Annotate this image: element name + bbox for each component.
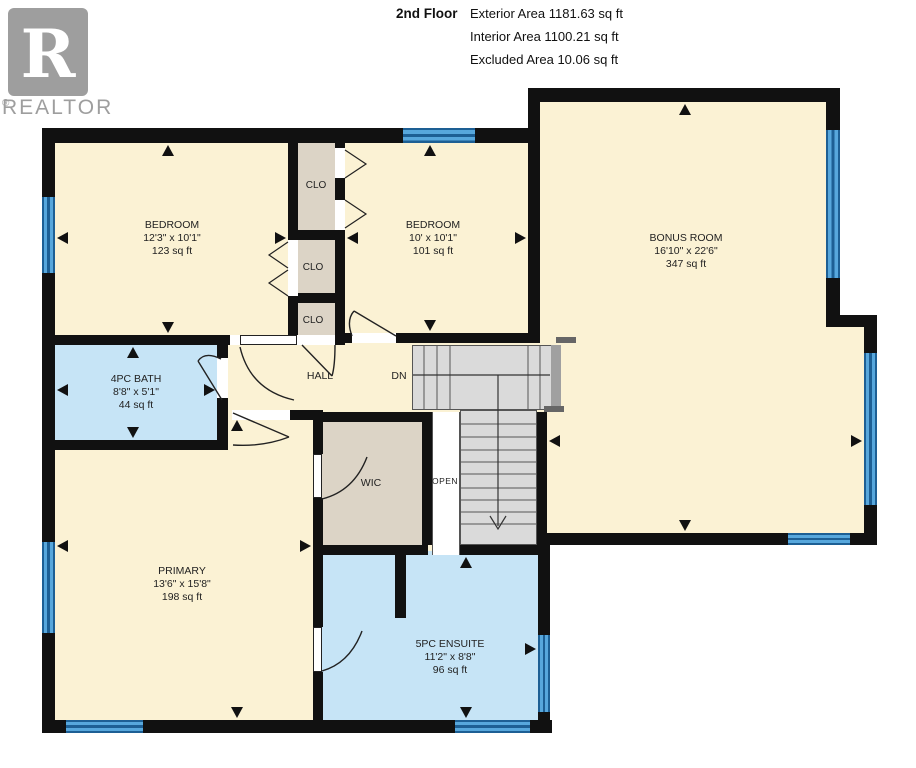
room-label-ensuite: 5PC ENSUITE 11'2" x 8'8" 96 sq ft: [370, 638, 530, 677]
dimension-arrow: [460, 557, 472, 568]
door-opening: [352, 333, 396, 343]
wall: [460, 545, 550, 555]
wall: [313, 498, 323, 545]
room-area: 44 sq ft: [56, 399, 216, 412]
room-name: 5PC ENSUITE: [370, 638, 530, 651]
dimension-arrow: [275, 232, 286, 244]
wall: [313, 412, 432, 422]
dimension-arrow: [127, 427, 139, 438]
floorplan-page: 2nd Floor Exterior Area 1181.63 sq ft In…: [0, 0, 916, 768]
room-label-primary: PRIMARY 13'6" x 15'8" 198 sq ft: [102, 565, 262, 604]
wall: [313, 672, 323, 733]
closet-label-bottom: CLO: [283, 314, 343, 327]
window: [42, 197, 55, 273]
realtor-logo: R: [8, 8, 88, 96]
realtor-brand-text: REALTOR: [2, 96, 113, 120]
wall: [528, 128, 540, 343]
wall: [537, 412, 547, 545]
dimension-arrow: [300, 540, 311, 552]
window: [455, 720, 530, 733]
door-opening: [217, 358, 228, 398]
realtor-logo-letter: R: [8, 12, 88, 96]
stair-edge-top: [556, 337, 576, 343]
interior-area-text: Interior Area 1100.21 sq ft: [470, 29, 619, 44]
room-label-bedroom1: BEDROOM 12'3" x 10'1" 123 sq ft: [92, 219, 252, 258]
room-ensuite: [322, 551, 540, 722]
registered-mark: ®: [2, 98, 11, 109]
room-name: BEDROOM: [353, 219, 513, 232]
room-area: 347 sq ft: [606, 258, 766, 271]
dimension-arrow: [127, 347, 139, 358]
wall: [42, 440, 228, 450]
stair-landing: [412, 345, 552, 410]
dimension-arrow: [460, 707, 472, 718]
room-name: BONUS ROOM: [606, 232, 766, 245]
window: [788, 533, 850, 545]
stairs-dn-label: DN: [386, 370, 412, 383]
dimension-arrow: [424, 320, 436, 331]
stair-rail: [551, 345, 561, 410]
wall: [217, 345, 228, 358]
wall: [396, 333, 540, 343]
hall-label: HALL: [290, 370, 350, 383]
room-label-bath: 4PC BATH 8'8" x 5'1" 44 sq ft: [56, 373, 216, 412]
wall: [345, 333, 352, 343]
wall: [335, 128, 345, 148]
dimension-arrow: [851, 435, 862, 447]
room-dims: 11'2" x 8'8": [370, 651, 530, 664]
exterior-area-text: Exterior Area 1181.63 sq ft: [470, 6, 623, 21]
stair-edge-bottom: [544, 406, 564, 412]
closet-door-opening: [335, 148, 345, 178]
floor-title: 2nd Floor: [396, 6, 458, 21]
door-opening: [232, 410, 290, 420]
dimension-arrow: [231, 707, 243, 718]
door-leaf: [240, 335, 297, 345]
room-area: 198 sq ft: [102, 591, 262, 604]
room-dims: 16'10" x 22'6": [606, 245, 766, 258]
realtor-wordmark: REALTOR®: [2, 96, 122, 120]
closet-door-opening: [335, 200, 345, 230]
window: [403, 128, 475, 143]
room-area: 123 sq ft: [92, 245, 252, 258]
room-label-bonus: BONUS ROOM 16'10" x 22'6" 347 sq ft: [606, 232, 766, 271]
room-dims: 8'8" x 5'1": [56, 386, 216, 399]
room-name: BEDROOM: [92, 219, 252, 232]
dimension-arrow: [424, 145, 436, 156]
dimension-arrow: [679, 104, 691, 115]
wall: [290, 410, 315, 420]
closet-label-mid: CLO: [283, 261, 343, 274]
dimension-arrow: [57, 232, 68, 244]
dimension-arrow: [162, 145, 174, 156]
door-leaf: [313, 627, 322, 672]
window: [42, 542, 55, 633]
wic-label: WIC: [341, 477, 401, 490]
dimension-arrow: [162, 322, 174, 333]
wall: [313, 545, 323, 627]
dimension-arrow: [57, 540, 68, 552]
room-name: 4PC BATH: [56, 373, 216, 386]
wall: [540, 88, 838, 102]
room-label-bedroom2: BEDROOM 10' x 10'1" 101 sq ft: [353, 219, 513, 258]
open-label: OPEN: [425, 476, 465, 486]
wall: [395, 552, 406, 618]
wall: [313, 545, 428, 555]
room-area: 96 sq ft: [370, 664, 530, 677]
window: [66, 720, 143, 733]
room-dims: 12'3" x 10'1": [92, 232, 252, 245]
room-bonus: [528, 88, 838, 545]
dimension-arrow: [231, 420, 243, 431]
window: [538, 635, 550, 712]
wall: [335, 230, 345, 345]
dimension-arrow: [549, 435, 560, 447]
room-dims: 13'6" x 15'8": [102, 578, 262, 591]
wall: [42, 335, 230, 345]
excluded-area-text: Excluded Area 10.06 sq ft: [470, 52, 618, 67]
window: [826, 130, 840, 278]
dimension-arrow: [515, 232, 526, 244]
dimension-arrow: [679, 520, 691, 531]
room-name: PRIMARY: [102, 565, 262, 578]
room-dims: 10' x 10'1": [353, 232, 513, 245]
door-leaf: [313, 454, 322, 498]
window: [864, 353, 877, 505]
room-area: 101 sq ft: [353, 245, 513, 258]
stair-run: [460, 410, 537, 545]
closet-label-top: CLO: [286, 179, 346, 192]
